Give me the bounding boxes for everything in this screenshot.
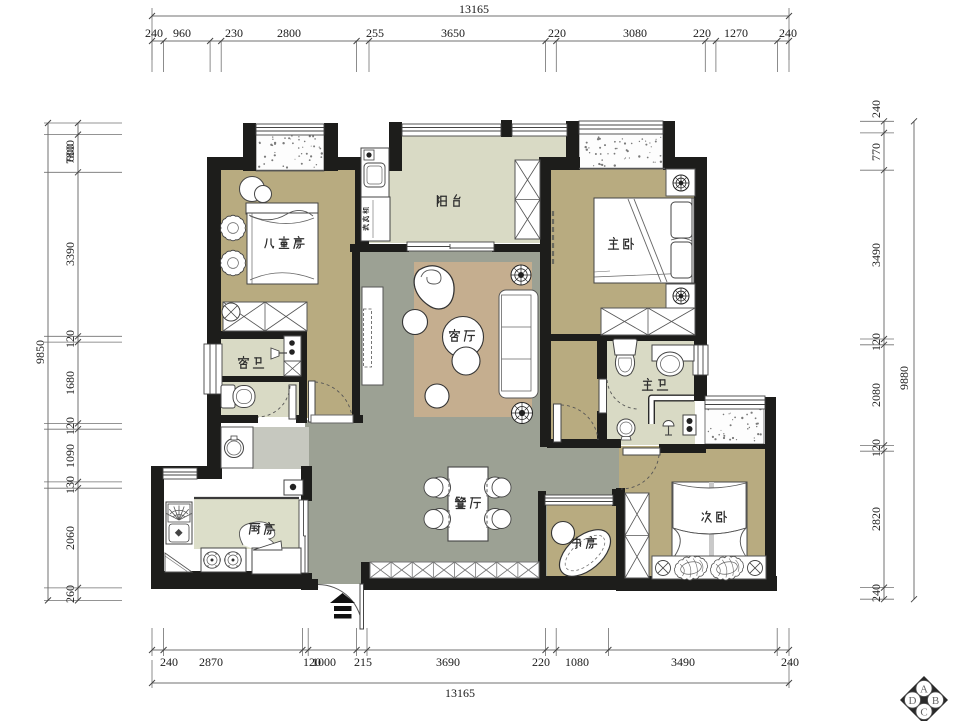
- svg-text:1270: 1270: [724, 26, 748, 40]
- svg-text:130: 130: [63, 476, 77, 494]
- svg-text:230: 230: [225, 26, 243, 40]
- svg-text:3390: 3390: [63, 242, 77, 266]
- svg-text:1000: 1000: [312, 655, 336, 669]
- svg-text:3490: 3490: [869, 243, 883, 267]
- svg-text:1090: 1090: [63, 444, 77, 468]
- svg-text:9880: 9880: [897, 366, 911, 390]
- svg-text:960: 960: [173, 26, 191, 40]
- svg-text:2800: 2800: [277, 26, 301, 40]
- svg-text:1680: 1680: [63, 371, 77, 395]
- svg-text:B: B: [932, 695, 939, 707]
- svg-text:13165: 13165: [459, 2, 489, 16]
- svg-text:220: 220: [548, 26, 566, 40]
- svg-text:9850: 9850: [33, 340, 47, 364]
- svg-text:3490: 3490: [671, 655, 695, 669]
- svg-text:240: 240: [869, 584, 883, 602]
- svg-text:240: 240: [779, 26, 797, 40]
- svg-text:2060: 2060: [63, 526, 77, 550]
- svg-text:120: 120: [63, 330, 77, 348]
- svg-text:240: 240: [160, 655, 178, 669]
- svg-text:120: 120: [63, 417, 77, 435]
- svg-text:220: 220: [693, 26, 711, 40]
- svg-text:13165: 13165: [445, 686, 475, 700]
- svg-text:2870: 2870: [199, 655, 223, 669]
- svg-text:240: 240: [781, 655, 799, 669]
- svg-text:3690: 3690: [436, 655, 460, 669]
- svg-text:2820: 2820: [869, 507, 883, 531]
- svg-text:C: C: [920, 707, 927, 719]
- svg-text:1080: 1080: [565, 655, 589, 669]
- svg-text:D: D: [909, 695, 917, 707]
- svg-text:220: 220: [532, 655, 550, 669]
- svg-text:3080: 3080: [623, 26, 647, 40]
- svg-text:215: 215: [354, 655, 372, 669]
- svg-text:3650: 3650: [441, 26, 465, 40]
- svg-text:120: 120: [869, 439, 883, 457]
- svg-text:240: 240: [145, 26, 163, 40]
- svg-text:A: A: [920, 684, 928, 696]
- svg-text:600: 600: [63, 144, 77, 162]
- svg-text:2080: 2080: [869, 383, 883, 407]
- svg-text:255: 255: [366, 26, 384, 40]
- svg-text:120: 120: [869, 333, 883, 351]
- svg-text:260: 260: [63, 585, 77, 603]
- svg-text:770: 770: [869, 143, 883, 161]
- svg-text:240: 240: [869, 100, 883, 118]
